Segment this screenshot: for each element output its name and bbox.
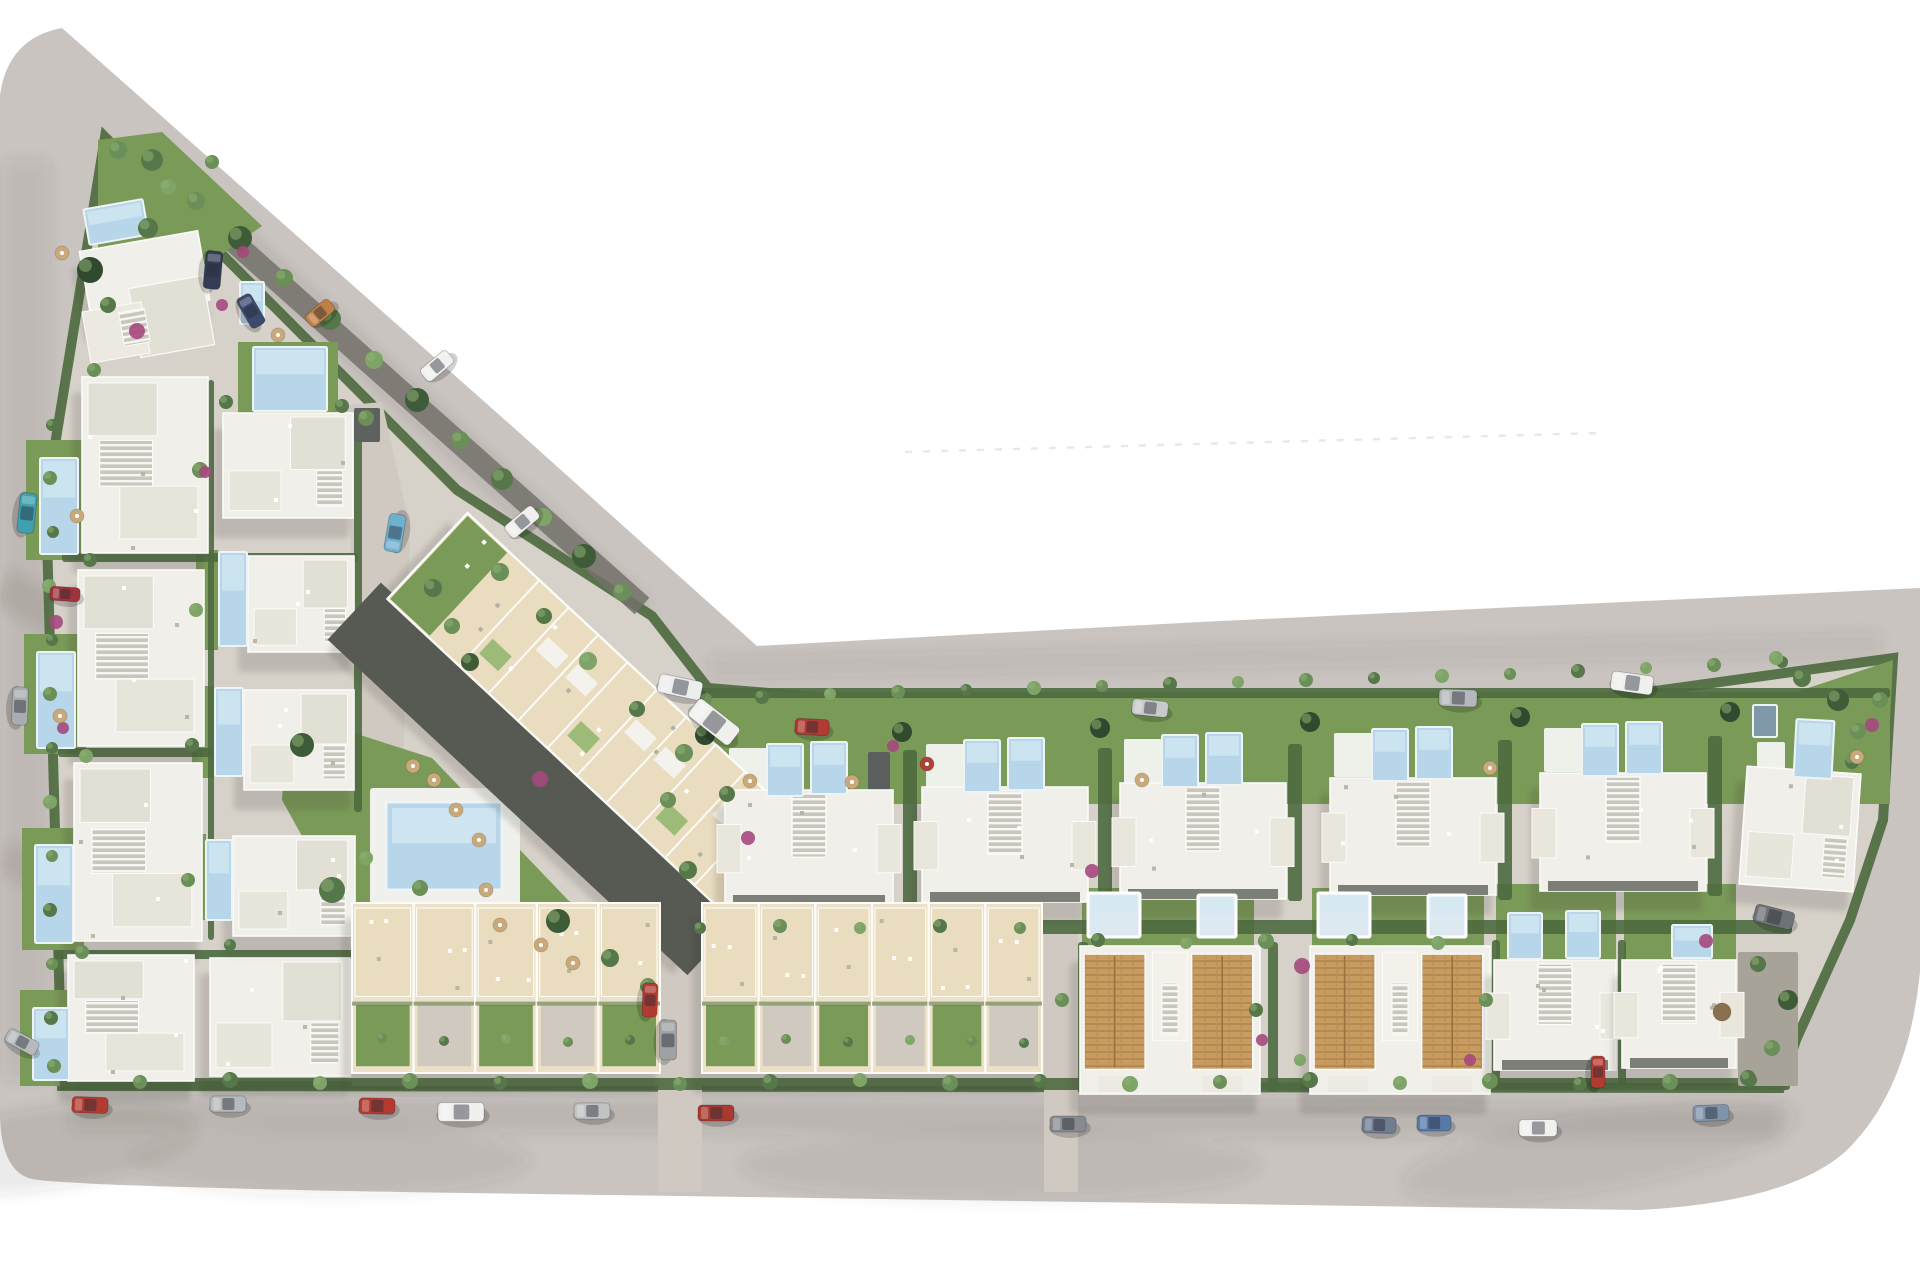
car-windshield [1062, 1118, 1074, 1130]
hedge [1268, 942, 1278, 1092]
car-windshield [1373, 1119, 1385, 1131]
car-windshield [806, 721, 818, 734]
hedge [872, 1002, 929, 1006]
parasol [479, 883, 493, 897]
car-windshield [388, 525, 403, 540]
flowering-shrub [49, 615, 63, 629]
tree [1504, 668, 1516, 680]
tree-highlight [763, 1075, 771, 1083]
tree-highlight [680, 862, 689, 871]
tree-highlight [602, 950, 611, 959]
pool-group [1753, 705, 1777, 737]
tree-highlight [1436, 670, 1443, 677]
tree-highlight [1034, 1075, 1041, 1082]
hedge [985, 1002, 1042, 1006]
pool-group [964, 740, 1000, 792]
tree-highlight [407, 390, 419, 402]
parasol [845, 775, 859, 789]
tree-highlight [1092, 934, 1099, 941]
tree-highlight [630, 702, 638, 710]
side-wing [1112, 818, 1136, 867]
roof-detail [185, 715, 189, 719]
tree [572, 544, 596, 568]
porch [1432, 1076, 1472, 1092]
car [697, 1105, 739, 1127]
car-windshield [60, 589, 71, 600]
tree [942, 1075, 958, 1091]
car [209, 1096, 251, 1118]
roof-detail [1601, 1029, 1605, 1033]
tree-highlight [1770, 652, 1777, 659]
tree [359, 851, 373, 865]
tree [536, 608, 552, 624]
tree-highlight [676, 745, 685, 754]
roof-detail [1341, 841, 1345, 845]
front-garden [933, 1005, 982, 1066]
tree-highlight [321, 879, 334, 892]
tree-highlight [161, 180, 169, 188]
flowering-shrub [1699, 934, 1713, 948]
roof-detail [1447, 832, 1451, 836]
tree [160, 179, 176, 195]
pool-highlight [1165, 738, 1195, 758]
tree [43, 795, 57, 809]
tree-highlight [1123, 1077, 1131, 1085]
ground-patch [1738, 952, 1798, 1086]
roof-detail [941, 986, 945, 990]
roof-detail [1017, 826, 1021, 830]
roof-detail [740, 982, 744, 986]
corner-villa [70, 231, 218, 367]
side-wing [1690, 808, 1714, 858]
roof-detail [121, 996, 125, 1000]
front-garden [706, 1005, 755, 1066]
road-shadow [740, 1129, 1260, 1201]
roof-detail [463, 948, 467, 952]
car-hood-highlight [75, 1098, 83, 1110]
tree-highlight [1512, 709, 1522, 719]
pool-group [767, 744, 803, 796]
pool-group [1582, 724, 1618, 776]
tree-highlight [564, 1038, 569, 1043]
roof-lower [112, 873, 191, 926]
site-plan-rendering [0, 0, 1920, 1280]
tree [675, 744, 693, 762]
tree [43, 903, 57, 917]
car-hood-highlight [213, 1098, 220, 1110]
tree [601, 949, 619, 967]
pool-highlight [1569, 914, 1597, 932]
car-windshield [371, 1100, 383, 1112]
tree [1163, 677, 1177, 691]
roof-detail [892, 956, 896, 960]
tree-highlight [1164, 678, 1171, 685]
roof-detail [748, 803, 752, 807]
road-shadow [130, 1124, 530, 1196]
side-wing [1614, 992, 1638, 1037]
flowering-shrub [1256, 1034, 1268, 1046]
pool-group [1566, 911, 1600, 958]
tree [933, 919, 947, 933]
tree-highlight [1663, 1075, 1671, 1083]
tree-highlight [854, 1074, 861, 1081]
tree-highlight [47, 851, 53, 857]
roof-upper [74, 961, 143, 999]
tree [402, 1073, 418, 1089]
tree-highlight [359, 411, 367, 419]
tree [563, 1037, 573, 1047]
car [1049, 1116, 1091, 1138]
tree-highlight [1295, 1055, 1301, 1061]
car-hood-highlight [1365, 1119, 1372, 1131]
car-windshield [644, 994, 655, 1006]
tree [1213, 1075, 1227, 1089]
flowering-shrub [57, 722, 69, 734]
swimming-pool [1753, 705, 1777, 737]
tree-highlight [782, 1035, 787, 1040]
tree-highlight [961, 685, 967, 691]
flowering-shrub [1085, 864, 1099, 878]
roof-terrace [762, 908, 813, 996]
roof-detail [1020, 855, 1024, 859]
tree-highlight [366, 352, 375, 361]
roof-detail [250, 988, 254, 992]
roof-detail [278, 911, 282, 915]
car-windshield [222, 1098, 234, 1110]
tree [762, 1074, 778, 1090]
car-windshield [14, 700, 26, 713]
car-windshield [84, 1099, 97, 1111]
tree [755, 690, 769, 704]
car-windshield [1593, 1067, 1603, 1078]
hedge [815, 1002, 872, 1006]
tree-highlight [494, 1077, 501, 1084]
ground-patch [1334, 733, 1372, 777]
parasol-pole [276, 333, 280, 337]
tree [1019, 1038, 1029, 1048]
flowering-shrub [1865, 718, 1879, 732]
roof-lower [116, 679, 194, 732]
ground-patch [868, 752, 890, 790]
pool-highlight [1511, 916, 1539, 933]
tree [1033, 1074, 1047, 1088]
side-wing [717, 825, 741, 873]
tree-highlight [1300, 674, 1307, 681]
tree-highlight [1574, 1078, 1581, 1085]
flowering-shrub [237, 246, 249, 258]
tree-highlight [44, 472, 51, 479]
stairwell [92, 827, 146, 873]
tree [1571, 664, 1585, 678]
tree-highlight [44, 688, 51, 695]
tree-highlight [720, 1037, 725, 1042]
tree [461, 653, 479, 671]
stairwell [1392, 983, 1408, 1035]
tree [1180, 937, 1192, 949]
parasol-pole [1855, 755, 1859, 759]
roof-detail [1070, 863, 1074, 867]
tree-highlight [44, 904, 51, 911]
roof-detail [306, 590, 310, 594]
tree-highlight [230, 228, 242, 240]
roof-detail [953, 948, 957, 952]
roof-terrace [705, 908, 756, 996]
roof-detail [131, 546, 135, 550]
tree [1778, 990, 1798, 1010]
tree [579, 652, 597, 670]
south-wall-shade [930, 892, 1080, 902]
tree-highlight [1347, 935, 1353, 941]
tree [1300, 712, 1320, 732]
roof-upper [84, 576, 153, 629]
tree-highlight [968, 1037, 973, 1042]
tree [719, 786, 735, 802]
tree-highlight [452, 432, 461, 441]
tree-highlight [220, 396, 227, 403]
stairwell [1606, 777, 1640, 842]
tree-highlight [1369, 673, 1375, 679]
roof-wing [283, 962, 342, 1021]
roof-detail [646, 923, 650, 927]
tree-highlight [134, 1076, 141, 1083]
tree-highlight [674, 1078, 681, 1085]
tree [854, 922, 866, 934]
car-hood-highlight [14, 690, 26, 698]
tree [1249, 1003, 1263, 1017]
roof-porch [254, 609, 296, 645]
roof-detail [174, 1033, 178, 1037]
front-path [418, 1005, 472, 1066]
car-windshield [454, 1105, 470, 1120]
tree-highlight [140, 220, 150, 230]
roof-detail [284, 708, 288, 712]
tree [1431, 936, 1445, 950]
car-windshield [1624, 675, 1640, 692]
pool-group [1428, 895, 1466, 937]
tree [205, 155, 219, 169]
tree [1294, 1054, 1306, 1066]
tree-highlight [188, 193, 197, 202]
car [1518, 1120, 1562, 1143]
car [1585, 1055, 1605, 1092]
rowhouse-villa [68, 570, 204, 766]
tree [358, 410, 374, 426]
roof-detail [847, 965, 851, 969]
car [1416, 1115, 1455, 1137]
tree [290, 733, 314, 757]
tree [138, 218, 158, 238]
roof-detail [1839, 825, 1843, 829]
roof-detail [574, 931, 578, 935]
duplex-house [1530, 773, 1714, 911]
tree-highlight [502, 1035, 507, 1040]
tree-highlight [1483, 1074, 1491, 1082]
hedge [759, 1002, 816, 1006]
tree [824, 688, 836, 700]
car-windshield [1705, 1107, 1718, 1119]
tree-highlight [378, 1034, 383, 1039]
car-hood-highlight [1593, 1059, 1603, 1065]
pool-highlight [1209, 736, 1239, 756]
stairwell [317, 471, 343, 507]
hedge [702, 1002, 759, 1006]
tree [46, 419, 58, 431]
roof-detail [448, 949, 452, 953]
tree-highlight [943, 1076, 951, 1084]
flowering-shrub [216, 299, 228, 311]
tree [1850, 723, 1866, 739]
roof-detail [1595, 1025, 1599, 1029]
roof-detail [853, 848, 857, 852]
roof-detail [1789, 784, 1793, 788]
parasol-pole [432, 778, 436, 782]
ground-patch [1544, 728, 1582, 772]
car-hood-highlight [577, 1105, 584, 1117]
tree-highlight [360, 852, 367, 859]
tree-highlight [661, 793, 669, 801]
stairwell [96, 633, 149, 679]
tree [1027, 681, 1041, 695]
tree-highlight [1751, 957, 1759, 965]
tree-highlight [493, 470, 504, 481]
tree [44, 1011, 58, 1025]
tree-highlight [1056, 994, 1063, 1001]
car-hood-highlight [798, 720, 805, 732]
tree [187, 192, 205, 210]
tree [1750, 956, 1766, 972]
parasol [1483, 761, 1497, 775]
roof-detail [999, 939, 1003, 943]
roof-detail [175, 623, 179, 627]
tree-highlight [47, 420, 53, 426]
car-windshield [672, 678, 690, 696]
roof-detail [253, 639, 257, 643]
tree [1393, 1076, 1407, 1090]
roof-detail [288, 424, 292, 428]
parasol-pole [477, 838, 481, 842]
tree [1122, 1076, 1138, 1092]
roof-detail [341, 461, 345, 465]
roof-detail [712, 944, 716, 948]
pool-group [1794, 719, 1835, 779]
tree-highlight [223, 1073, 231, 1081]
roof-detail [1027, 977, 1031, 981]
stairwell [1538, 964, 1572, 1025]
tree [451, 431, 469, 449]
villa [1728, 765, 1861, 911]
parasol-pole [75, 514, 79, 518]
hedge [414, 1002, 476, 1006]
tree-highlight [1741, 1071, 1749, 1079]
tree [219, 395, 233, 409]
parasol [449, 803, 463, 817]
tree [1302, 1072, 1318, 1088]
tree-highlight [1302, 714, 1312, 724]
car-windshield [662, 1034, 675, 1048]
tree [1258, 933, 1274, 949]
tree [319, 877, 345, 903]
rowhouse-villa [64, 763, 202, 961]
flowering-shrub [199, 466, 211, 478]
tree-highlight [1092, 720, 1102, 730]
roof-detail [184, 959, 188, 963]
tree-highlight [425, 580, 434, 589]
tree-highlight [79, 259, 92, 272]
tree [491, 468, 513, 490]
roof-detail [144, 803, 148, 807]
parasol [920, 757, 934, 771]
roof-detail [384, 919, 388, 923]
tree [189, 603, 203, 617]
tree-highlight [1708, 659, 1715, 666]
pool-group [206, 840, 232, 920]
side-wing [1072, 822, 1096, 870]
pool-group [215, 688, 243, 776]
car-hood-highlight [701, 1107, 708, 1119]
tree [224, 939, 236, 951]
pool-group [1626, 722, 1662, 774]
roof-detail [79, 840, 83, 844]
tree-highlight [225, 940, 231, 946]
parasol [566, 956, 580, 970]
roof-porch [229, 471, 281, 511]
tree-highlight [445, 619, 453, 627]
tree-highlight [580, 653, 589, 662]
roof-terrace [355, 908, 411, 996]
tree-highlight [720, 787, 728, 795]
tree [1662, 1074, 1678, 1090]
car-hood-highlight [1420, 1117, 1427, 1129]
tree [109, 141, 127, 159]
hedge [537, 1002, 599, 1006]
roof-detail [111, 1070, 115, 1074]
tree [1872, 692, 1888, 708]
car-hood-highlight [1134, 700, 1142, 713]
parasol [743, 774, 757, 788]
tree [493, 1076, 507, 1090]
parasol [406, 759, 420, 773]
hedge [475, 1002, 537, 1006]
tree [83, 553, 97, 567]
tree-highlight [101, 298, 109, 306]
tree-highlight [44, 796, 51, 803]
roof-porch [216, 1023, 272, 1068]
pool-highlight [1321, 896, 1367, 913]
roof-detail [331, 858, 335, 862]
tree [87, 363, 101, 377]
terracotta-house [1070, 946, 1260, 1114]
tree [491, 563, 509, 581]
tree-highlight [1641, 663, 1647, 669]
roof-detail [966, 985, 970, 989]
tree [781, 1034, 791, 1044]
roof-detail [377, 957, 381, 961]
tree [1510, 707, 1530, 727]
tree-highlight [695, 923, 701, 929]
tree [1573, 1077, 1587, 1091]
roof-lower [106, 1033, 184, 1071]
flowering-shrub [741, 831, 755, 845]
roof-detail [91, 934, 95, 938]
parasol [70, 509, 84, 523]
parasol-pole [411, 764, 415, 768]
tree-highlight [440, 1037, 445, 1042]
tree-highlight [336, 400, 343, 407]
tree-highlight [186, 739, 193, 746]
pool-highlight [1629, 725, 1659, 745]
parasol-pole [748, 779, 752, 783]
stairwell [311, 1023, 339, 1063]
